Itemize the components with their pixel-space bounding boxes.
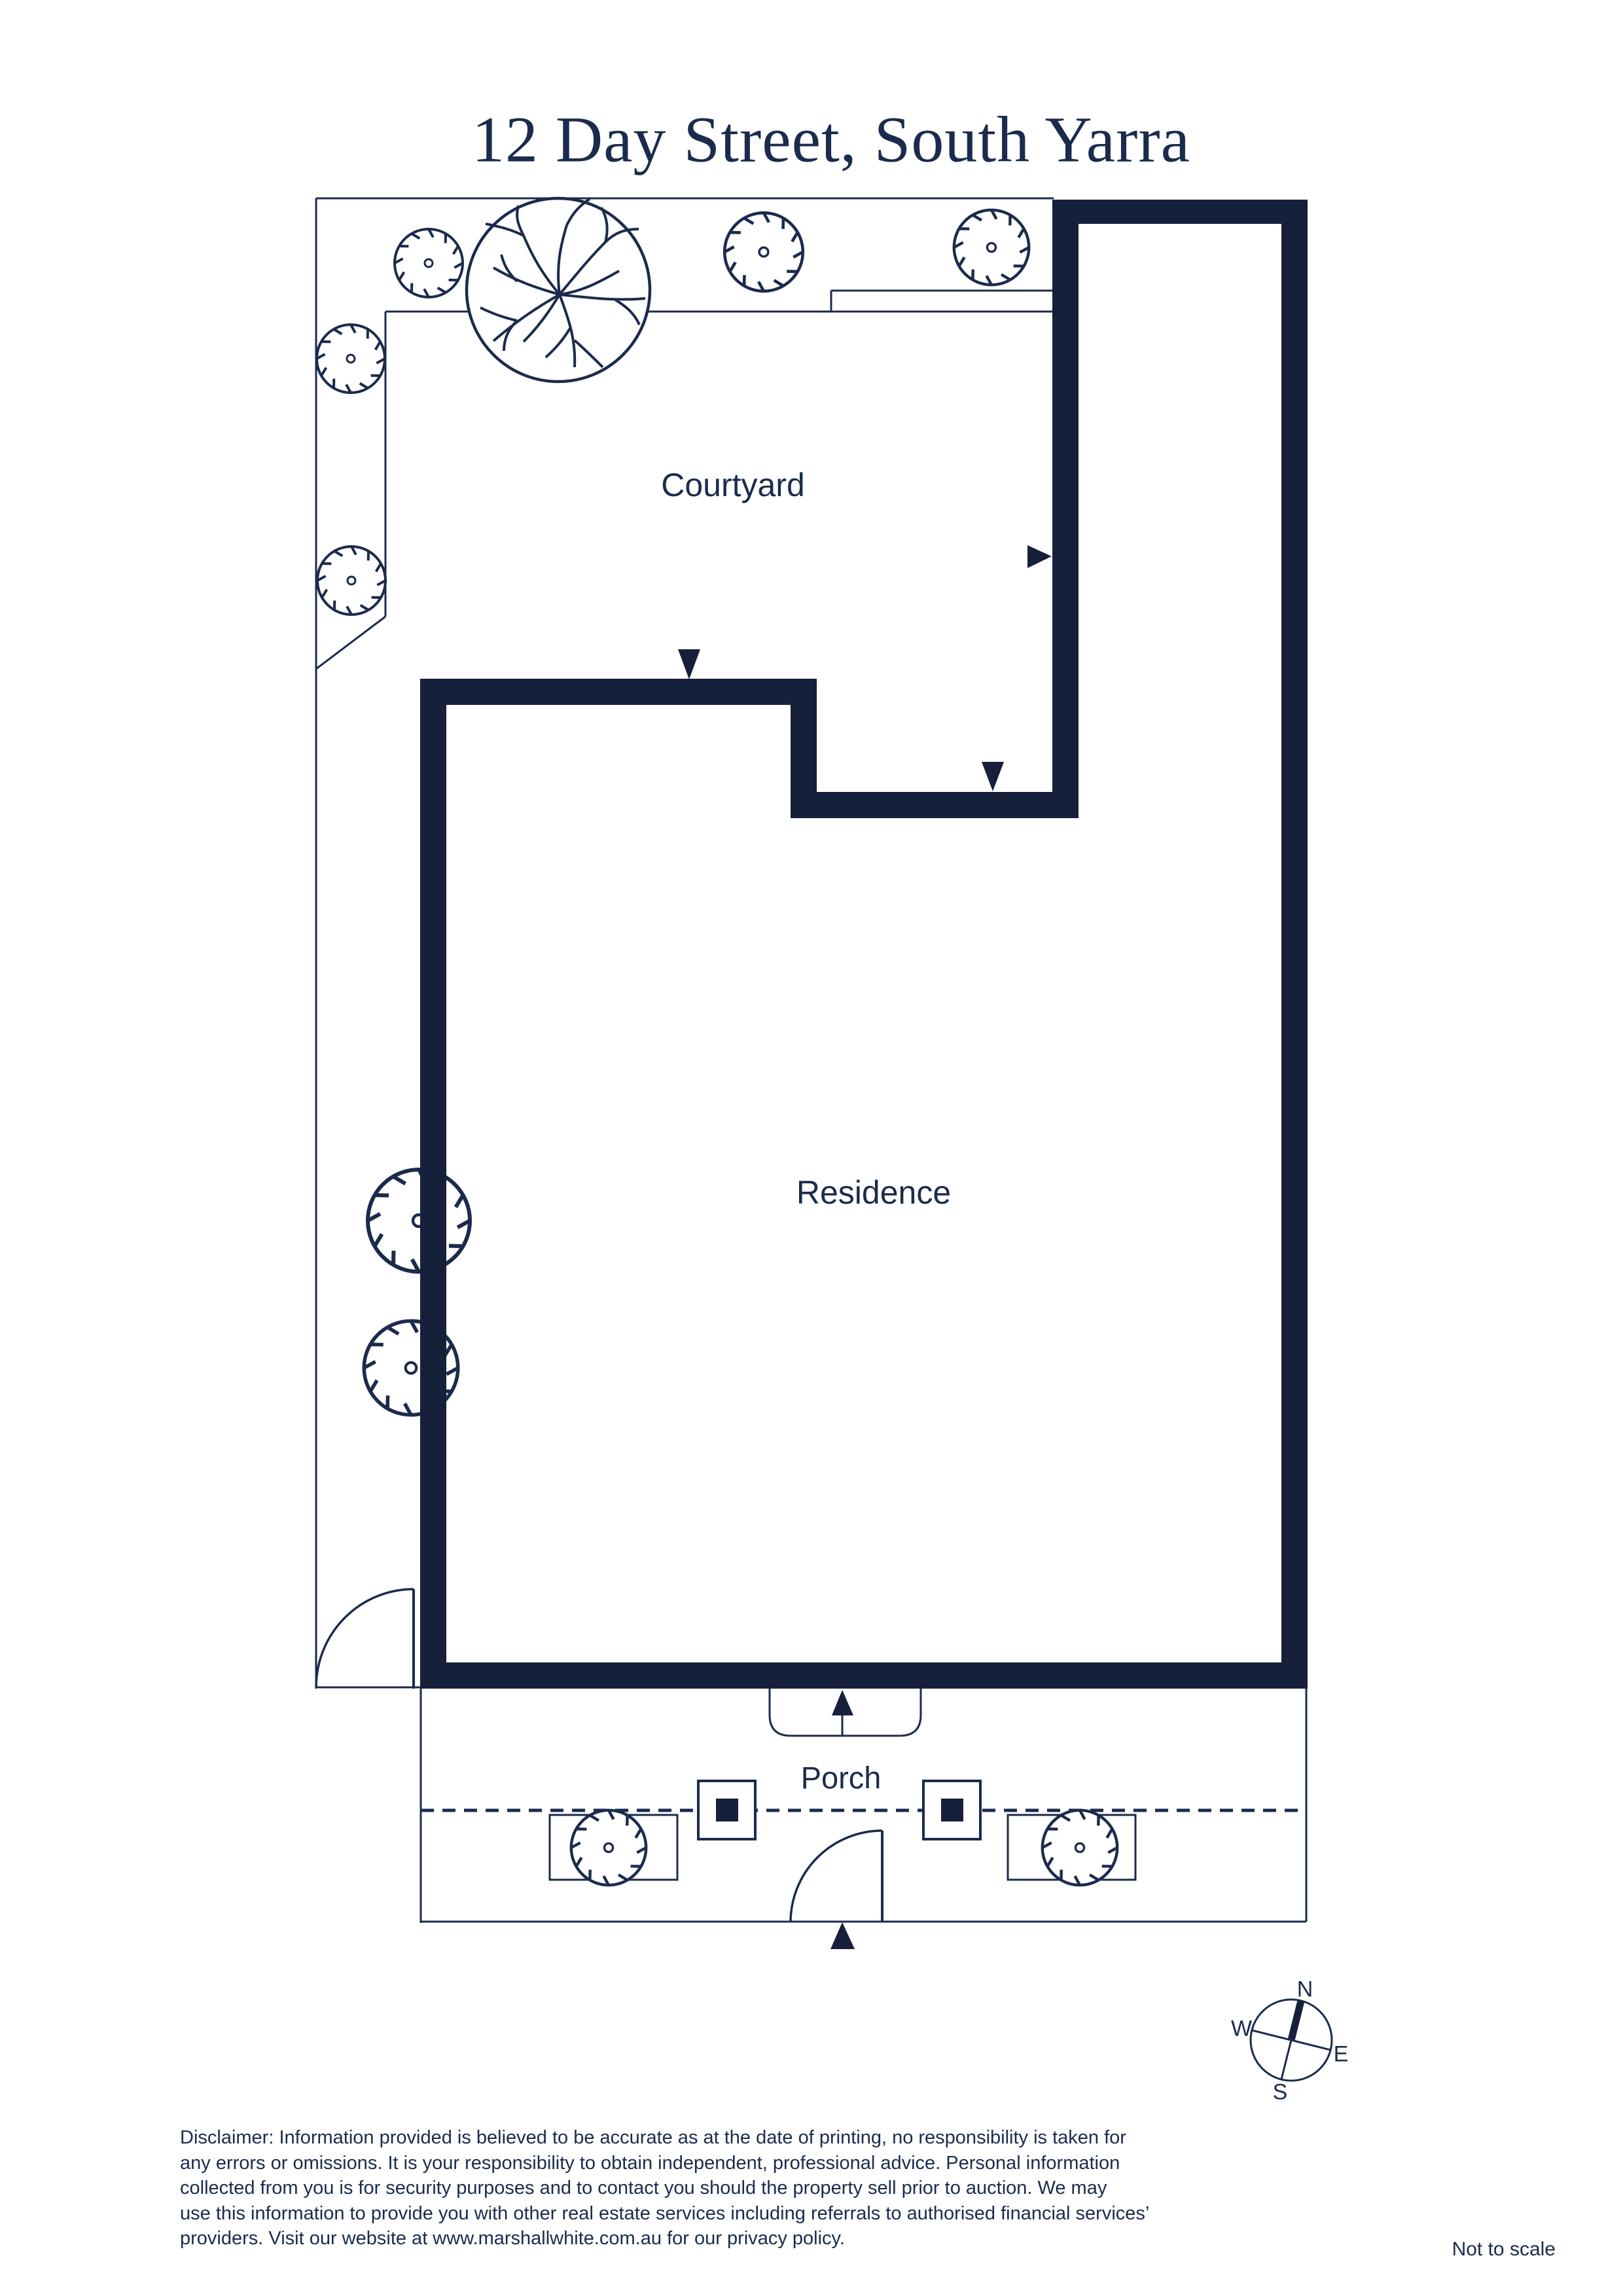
shrub-icon (395, 229, 463, 297)
wall-step-bottom (791, 792, 1079, 818)
compass-west-label: W (1231, 2017, 1252, 2042)
shrub-icon (317, 325, 385, 393)
porch-label: Porch (801, 1760, 882, 1796)
porch-door (791, 1831, 882, 1922)
entry-arrow-icon (1027, 545, 1052, 568)
wall-wing-top (1052, 200, 1308, 224)
disclaimer-line: Disclaimer: Information provided is beli… (180, 2125, 1332, 2151)
compass-south-label: S (1273, 2080, 1288, 2106)
compass-east-label: E (1334, 2042, 1349, 2068)
entry-arrows (678, 545, 1052, 1949)
disclaimer-line: use this information to provide you with… (180, 2201, 1332, 2227)
floor-plan-canvas (0, 0, 1623, 2296)
residence-walls (420, 200, 1308, 1689)
courtyard-ledge (831, 291, 1052, 312)
door-swing-arc (791, 1831, 882, 1922)
porch-post-core (941, 1799, 963, 1821)
shrub-icon (1043, 1810, 1117, 1885)
shrub-icon (317, 547, 385, 615)
wall-wing-left (1052, 200, 1079, 818)
door-swing-arc (316, 1589, 414, 1687)
side-gate-door (316, 1589, 414, 1689)
courtyard-edge-diagonal (316, 617, 385, 669)
wall-top (420, 679, 817, 705)
wall-bottom (420, 1662, 1308, 1689)
disclaimer-text: Disclaimer: Information provided is beli… (180, 2125, 1332, 2251)
disclaimer-line: collected from you is for security purpo… (180, 2176, 1332, 2201)
entry-arrow-icon (830, 1922, 855, 1949)
disclaimer-line: providers. Visit our website at www.mars… (180, 2226, 1332, 2251)
disclaimer-line: any errors or omissions. It is your resp… (180, 2151, 1332, 2176)
compass-rose-icon (1251, 2000, 1332, 2081)
courtyard-label: Courtyard (661, 466, 805, 504)
wall-left (420, 679, 446, 1689)
entry-arrow-icon (832, 1690, 853, 1715)
shrub-icon (571, 1810, 646, 1885)
page-title: 12 Day Street, South Yarra (472, 102, 1190, 177)
tree-canopy-icon (467, 198, 650, 382)
porch-post-core (716, 1799, 738, 1821)
wall-right (1281, 224, 1308, 1689)
residence-label: Residence (796, 1174, 951, 1211)
entry-arrow-icon (678, 649, 700, 679)
compass-needle-south (1281, 2040, 1291, 2079)
entry-arrow-icon (982, 762, 1004, 791)
shrub-icon (954, 210, 1029, 285)
not-to-scale-note: Not to scale (1452, 2238, 1556, 2261)
shrub-icon (368, 1170, 470, 1272)
shrub-icon (724, 213, 803, 291)
compass-needle-north (1291, 2001, 1301, 2040)
compass-north-label: N (1297, 1977, 1313, 2003)
